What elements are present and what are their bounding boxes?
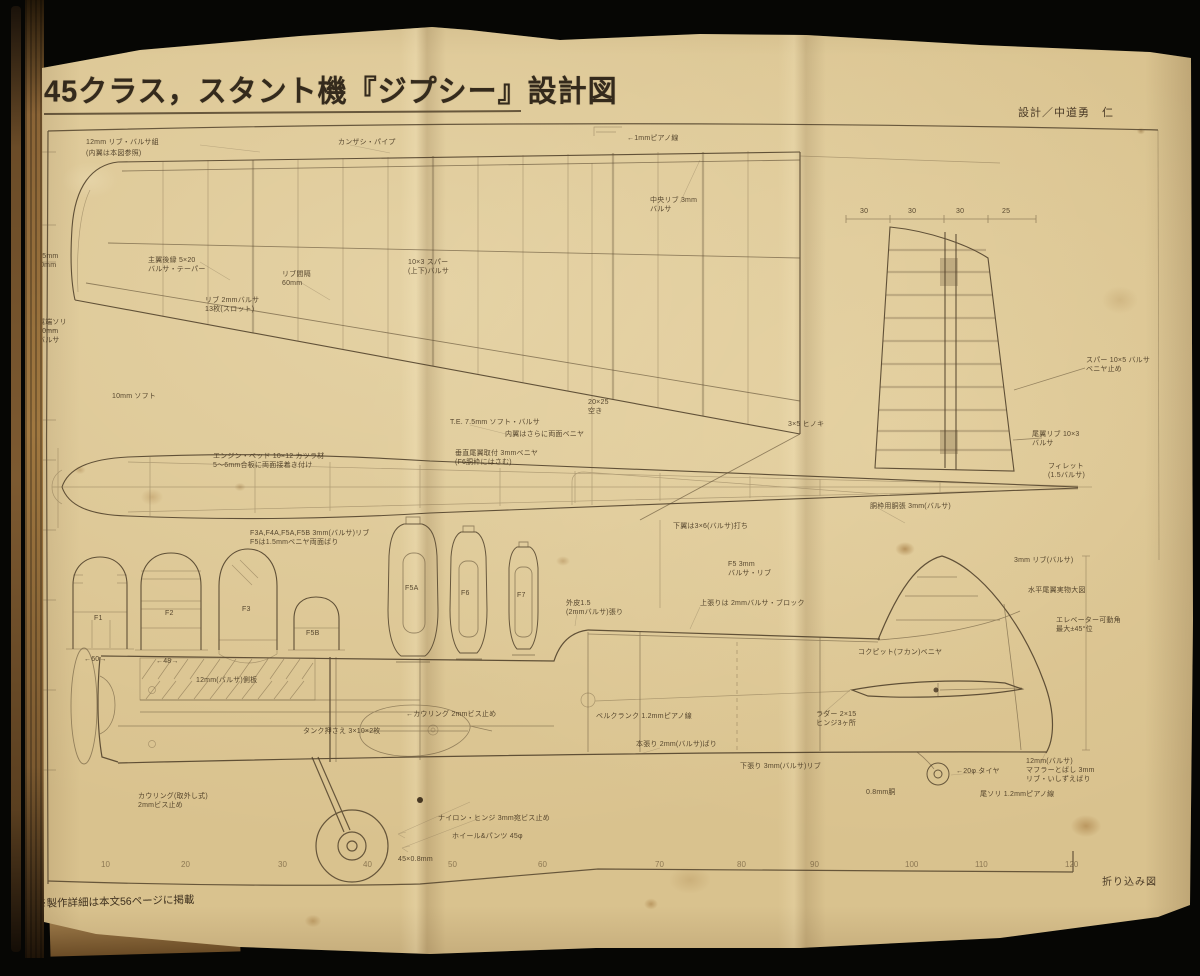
annotation: F5 3mm バルサ・リブ <box>728 560 771 578</box>
former-details <box>66 560 345 663</box>
tail-wheel <box>927 763 949 785</box>
annotation: 主翼後縁 5×20 バルサ・テーパー <box>148 256 206 274</box>
annotation: タンク押さえ 3×10×2枚 <box>303 727 381 736</box>
spar-notch <box>940 258 958 286</box>
annotation: 外皮1.5 (2mmバルサ)張り <box>566 599 623 617</box>
scale-tick-label: 100 <box>905 860 918 869</box>
annotation: 30 <box>908 207 916 216</box>
fuselage-side-inner <box>100 577 1022 769</box>
annotation: コクピット(フカン)ベニヤ <box>858 648 942 657</box>
annotation: 45×0.8mm <box>398 855 433 864</box>
annotation: ←カウリング 2mmビス止め <box>406 710 496 719</box>
annotation: ←48→ <box>156 657 179 666</box>
frame-light <box>40 127 1159 770</box>
annotation: 下翼は3×6(バルサ)打ち <box>673 522 748 531</box>
annotation: ←60→ <box>84 655 107 664</box>
blueprint-drawing <box>0 0 1200 976</box>
annotation: 25 <box>1002 207 1010 216</box>
annotation: (内翼は本図参照) <box>86 149 141 158</box>
annotation: 10×3 スパー (上下)バルサ <box>408 258 449 276</box>
footer-note-right: 折り込み図 <box>1102 873 1157 888</box>
annotation: フィレット (1.5バルサ) <box>1048 462 1085 480</box>
footer-note-left: ※製作詳細は本文56ページに掲載 <box>36 892 195 911</box>
scale-tick-label: 110 <box>975 860 988 869</box>
annotation: エレベーター可動角 最大±45°位 <box>1056 616 1121 634</box>
scale-tick-label: 30 <box>278 860 287 869</box>
annotation: F3 <box>242 605 251 614</box>
annotation: 3×5 ヒノキ <box>788 420 824 429</box>
photo-frame: 45クラス，スタント機『ジプシー』設計図 設計／中道勇 仁 ※製作詳細は本文56… <box>0 0 1200 976</box>
annotation: 尾翼リブ 10×3 バルサ <box>1032 430 1080 448</box>
annotation: T.E. 7.5mm ソフト・バルサ <box>450 418 540 427</box>
formers <box>73 549 339 650</box>
scale-tick-label: 10 <box>101 860 110 869</box>
annotation: リブ間隔 60mm <box>282 270 311 288</box>
propeller-side-view <box>71 648 97 764</box>
control-system <box>149 687 851 748</box>
scale-tick-label: 40 <box>363 860 372 869</box>
scale-tick-label: 90 <box>810 860 819 869</box>
annotation: 垂直尾翼取付 3mmベニヤ (F6胴枠にはさむ) <box>455 449 538 467</box>
ink-blot <box>417 797 423 803</box>
scale-tick-label: 60 <box>538 860 547 869</box>
scale-tick-label: 70 <box>655 860 664 869</box>
annotation: 20×25 空き <box>588 398 609 416</box>
annotation: 30 <box>956 207 964 216</box>
fuselage-top-inner <box>52 156 1092 608</box>
annotation: カンザシ・パイプ <box>338 138 396 147</box>
annotation: 上張りは 2mmバルサ・ブロック <box>700 599 805 608</box>
wing-ribs <box>78 151 749 425</box>
book-page-edge <box>11 6 21 952</box>
annotation: F3A,F4A,F5A,F5B 3mm(バルサ)リブ F5は1.5mmベニヤ両面… <box>250 529 370 547</box>
annotation: F6 <box>461 589 470 598</box>
annotation: F5B <box>306 629 319 638</box>
annotation: 12mm(バルサ)側板 <box>196 676 257 685</box>
stabilizer-dimensions <box>846 215 1085 440</box>
annotation: 中央リブ 3mm バルサ <box>650 196 697 214</box>
stabilizer-plan <box>875 227 1014 471</box>
magazine-foldout-page: 45クラス，スタント機『ジプシー』設計図 設計／中道勇 仁 ※製作詳細は本文56… <box>0 0 1200 976</box>
annotation: 12mm(バルサ) マフラーとばし 3mm リブ・いしずえばり <box>1026 757 1095 784</box>
wing-rib-bands <box>253 152 703 416</box>
annotation: 10mm ソフト <box>112 392 156 401</box>
leader-lines <box>200 145 1046 852</box>
spar-notch <box>940 430 958 454</box>
annotation: F7 <box>517 591 526 600</box>
annotation: エンジン・ベッド 10×12 カツラ材 5〜6mm合板に両面接着き付け <box>213 452 324 470</box>
annotation: ベルクランク 1.2mmピアノ線 <box>596 712 692 721</box>
hinge-point <box>934 688 939 693</box>
wing-plan <box>71 152 800 434</box>
scale-tick-label: 50 <box>448 860 457 869</box>
annotation: 水平尾翼実物大図 <box>1028 586 1086 595</box>
annotation: ラダー 2×15 ヒンジ3ヶ所 <box>816 710 856 728</box>
scale-tick-label: 80 <box>737 860 746 869</box>
scale-tick-label: 20 <box>181 860 190 869</box>
annotation: F1 <box>94 614 103 623</box>
annotation: ←1mmピアノ線 <box>627 134 679 143</box>
annotation: スパー 10×5 バルサ ベニヤ止め <box>1086 356 1150 374</box>
annotation: 本張り 2mm(バルサ)ばり <box>636 740 717 749</box>
annotation: 3mm リブ(バルサ) <box>1014 556 1073 565</box>
annotation: 内翼はさらに両面ベニヤ <box>505 430 584 439</box>
fuselage-side-view <box>98 556 1053 763</box>
annotation: ホイール&パンツ 45φ <box>452 832 523 841</box>
annotation: ナイロン・ヒンジ 3mm宛ビス止め <box>438 814 550 823</box>
annotation: 下張り 3mm(バルサ)リブ <box>740 762 821 771</box>
designer-credit: 設計／中道勇 仁 <box>1018 104 1114 120</box>
annotation: 30 <box>860 207 868 216</box>
book-page-edge <box>25 0 44 958</box>
page-title: 45クラス，スタント機『ジプシー』設計図 <box>44 67 618 111</box>
annotation: カウリング(取外し式) 2mmビス止め <box>138 792 208 810</box>
annotation: 尾ソリ 1.2mmピアノ線 <box>980 790 1054 799</box>
annotation: F5A <box>405 584 418 593</box>
annotation: リブ 2mmバルサ 13枚(スロット) <box>205 296 259 314</box>
annotation: F2 <box>165 609 174 618</box>
stabilizer-ribs <box>876 250 1011 450</box>
annotation: 0.8mm胴 <box>866 788 896 797</box>
landing-gear-wheel <box>312 757 388 882</box>
annotation: 12mm リブ・バルサ組 <box>86 138 159 147</box>
annotation: 胴枠用胴張 3mm(バルサ) <box>870 502 951 511</box>
annotation: ←20φ タイヤ <box>956 767 1000 776</box>
scale-tick-label: 120 <box>1065 860 1078 869</box>
